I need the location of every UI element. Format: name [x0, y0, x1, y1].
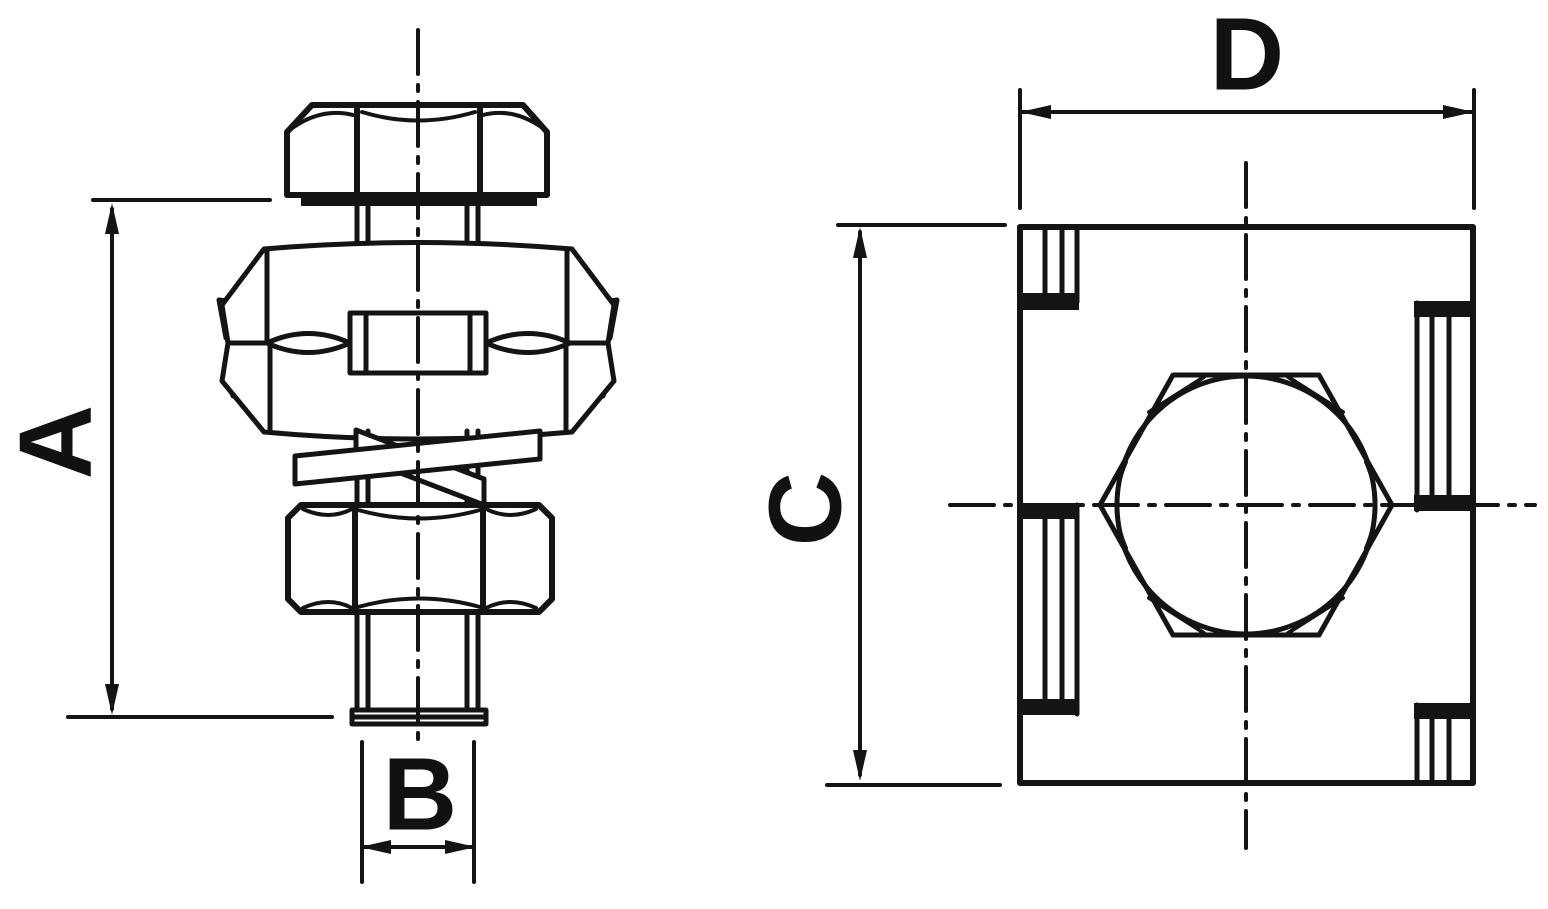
top-view — [827, 90, 1535, 848]
front-view — [68, 30, 617, 882]
drawing-canvas — [0, 0, 1548, 909]
dimension-label-d: D — [1210, 3, 1284, 106]
dimension-label-b: B — [383, 743, 457, 846]
dimension-label-c: C — [754, 472, 857, 546]
technical-drawing: A B C D — [0, 0, 1548, 909]
dimension-label-a: A — [4, 405, 107, 479]
